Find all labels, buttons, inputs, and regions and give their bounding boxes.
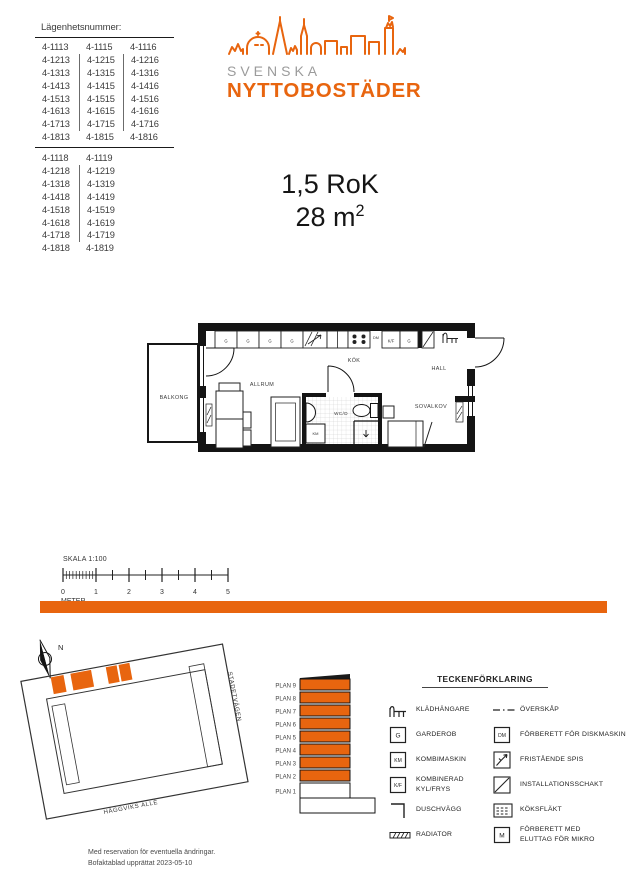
room-label-balkong: BALKONG [160, 395, 189, 401]
legend-item: KMKOMBIMASKIN [388, 747, 492, 772]
apartment-numbers-group-2: 4-11184-11194-12184-12194-13184-13194-14… [35, 152, 174, 255]
apartment-number: 4-1218 [35, 165, 79, 178]
box-m-symbol-icon: M [492, 825, 512, 845]
apartment-number: 4-1513 [35, 93, 79, 106]
brand-name-bottom: NYTTOBOSTÄDER [227, 79, 432, 103]
svg-text:DM: DM [498, 733, 506, 739]
apartment-number: 4-1118 [35, 152, 79, 165]
overhead-cabinet-icon [492, 701, 518, 719]
floor-band [300, 757, 350, 768]
legend-item-label: RADIATOR [416, 830, 452, 839]
room-label-hall: HALL [431, 366, 446, 372]
apartment-numbers-table: Lägenhetsnummer: 4-11134-11154-11164-121… [35, 22, 174, 255]
apartment-number: 4-1718 [35, 229, 79, 242]
rok-label: 1,5 RoK [230, 168, 430, 201]
entry-door [475, 338, 504, 367]
brand-name-top: SVENSKA [227, 63, 432, 79]
apartment-number-row: 4-14134-14154-1416 [35, 80, 174, 93]
north-label: N [58, 643, 63, 652]
legend-item: RADIATOR [388, 822, 492, 847]
coat-hanger-icon [443, 333, 458, 343]
floor-label: PLAN 4 [275, 749, 296, 755]
legend-item-label: KOMBIMASKIN [416, 755, 466, 764]
apartment-number: 4-1813 [35, 131, 79, 144]
legend-item-label: DUSCHVÄGG [416, 805, 462, 814]
apartment-number-row: 4-12134-12154-1216 [35, 54, 174, 67]
apartment-number-row: 4-17134-17154-1716 [35, 118, 174, 131]
floor-band [300, 770, 350, 781]
legend-item-label: FRISTÅENDE SPIS [520, 755, 583, 764]
apartment-number: 4-1518 [35, 204, 79, 217]
floor-label: PLAN 6 [275, 723, 296, 729]
legend-item-label: GARDEROB [416, 730, 457, 739]
ruler-number: 4 [193, 589, 197, 596]
km-label: KM [313, 431, 319, 436]
floor-band [300, 783, 350, 798]
installation-shaft-icon [492, 775, 512, 795]
coat-hanger-icon [388, 701, 410, 719]
duschvagg-symbol [388, 801, 416, 819]
bathroom [306, 397, 378, 444]
floor-label: PLAN 8 [275, 697, 296, 703]
apartment-number: 4-1316 [123, 67, 167, 80]
legend-item-label: ÖVERSKÅP [520, 705, 559, 714]
apartment-size-title: 1,5 RoK 28 m2 [230, 168, 430, 234]
ruler-number: 5 [226, 589, 230, 596]
garderob-label: G [224, 339, 227, 344]
balcony-door [206, 348, 234, 376]
scale-ruler [58, 566, 238, 584]
apartment-number: 4-1115 [79, 41, 123, 54]
bathroom-door [328, 366, 354, 392]
bofaktablad-page: Lägenhetsnummer: 4-11134-11154-11164-121… [0, 0, 626, 880]
apartment-number: 4-1216 [123, 54, 167, 67]
garderob-label: G [246, 339, 249, 344]
apartment-number: 4-1413 [35, 80, 79, 93]
floor-plan: BALKONG ALLRUM KÖK HALL SOVALKOV WC/D G … [140, 308, 540, 473]
garderob-label: G [290, 339, 293, 344]
koksflakt-symbol [492, 801, 520, 819]
overskap-symbol [492, 701, 520, 719]
floor-band [300, 731, 350, 742]
spis-symbol [492, 750, 520, 770]
apartment-number: 4-1219 [79, 165, 123, 178]
apartment-number-row: 4-12184-1219 [35, 165, 174, 178]
svg-text:KM: KM [394, 758, 402, 764]
footer-line-1: Med reservation för eventuella ändringar… [88, 848, 215, 859]
apartment-number-row: 4-14184-1419 [35, 191, 174, 204]
legend-item: DMFÖRBERETT FÖR DISKMASKIN [492, 722, 626, 747]
sink-symbol [348, 331, 370, 348]
building-outline [21, 644, 248, 819]
ruler-number: 2 [127, 589, 131, 596]
apartment-number-row: 4-17184-1719 [35, 229, 174, 242]
stove-icon [492, 750, 512, 770]
svg-text:M: M [499, 832, 504, 839]
apartment-number: 4-1419 [79, 191, 123, 204]
scale-numbers: 012345 [58, 589, 258, 599]
apartment-number: 4-1515 [79, 93, 123, 106]
apartment-number: 4-1213 [35, 54, 79, 67]
floor-band [300, 679, 350, 690]
box-kf-symbol: K/F [388, 775, 416, 795]
box-dm-symbol-icon: DM [492, 725, 512, 745]
room-label-sovalkov: SOVALKOV [415, 404, 447, 410]
garderob-label: G [268, 339, 271, 344]
legend-item-label: FÖRBERETT MED ELUTTAG FÖR MIKRO [520, 825, 595, 843]
toilet-icon [353, 405, 370, 417]
apartment-number: 4-1418 [35, 191, 79, 204]
apartment-number: 4-1315 [79, 67, 123, 80]
apartment-number: 4-1816 [123, 131, 167, 144]
box-g-symbol-icon: G [388, 725, 408, 745]
apartment-number: 4-1815 [79, 131, 123, 144]
box-dm-symbol: DM [492, 725, 520, 745]
floor-band [300, 744, 350, 755]
company-logo: SVENSKA NYTTOBOSTÄDER [227, 8, 432, 103]
shower-wall-icon [388, 801, 408, 819]
apartment-number: 4-1618 [35, 217, 79, 230]
radiator-icon [388, 826, 412, 844]
footer-line-2: Bofaktablad upprättat 2023-05-10 [88, 859, 215, 870]
apartment-number: 4-1719 [79, 229, 123, 242]
floor-band [300, 705, 350, 716]
legend-item-label: INSTALLATIONSSCHAKT [520, 780, 603, 789]
legend-title: TECKENFÖRKLARING [422, 674, 548, 688]
floor-label: PLAN 5 [275, 736, 296, 742]
legend-item: KLÄDHÄNGARE [388, 697, 492, 722]
legend-item: FRISTÅENDE SPIS [492, 747, 626, 772]
apartment-number: 4-1215 [79, 54, 123, 67]
legend-item: K/FKOMBINERAD KYL/FRYS [388, 772, 492, 797]
apartment-number: 4-1818 [35, 242, 79, 255]
floor-label: PLAN 3 [275, 762, 296, 768]
area-label: 28 m2 [230, 201, 430, 234]
svg-text:G: G [395, 732, 400, 739]
apartment-number-row: 4-15134-15154-1516 [35, 93, 174, 106]
legend-item: INSTALLATIONSSCHAKT [492, 772, 626, 797]
box-kf-symbol-icon: K/F [388, 775, 408, 795]
box-m-symbol: M [492, 825, 520, 845]
apartment-number: 4-1516 [123, 93, 167, 106]
apartment-number-row: 4-18184-1819 [35, 242, 174, 255]
legend-item-label: KÖKSFLÄKT [520, 805, 562, 814]
kladhangare-symbol [388, 701, 416, 719]
apartment-numbers-group-1: 4-11134-11154-11164-12134-12154-12164-13… [35, 41, 174, 144]
legend-column-left: KLÄDHÄNGARE GGARDEROB KMKOMBIMASKIN K/FK… [388, 697, 492, 847]
apartment-number: 4-1716 [123, 118, 167, 131]
legend-item-label: KLÄDHÄNGARE [416, 705, 470, 714]
apartment-number: 4-1713 [35, 118, 79, 131]
apartment-number: 4-1819 [79, 242, 123, 255]
box-g-symbol: G [388, 725, 416, 745]
apartment-numbers-title: Lägenhetsnummer: [35, 22, 174, 38]
apartment-number: 4-1318 [35, 178, 79, 191]
apartment-number: 4-1619 [79, 217, 123, 230]
footer-disclaimer: Med reservation för eventuella ändringar… [88, 848, 215, 869]
toilet-tank [371, 404, 379, 418]
floor-label: PLAN 1 [275, 790, 296, 796]
apartment-number-row: 4-11134-11154-1116 [35, 41, 174, 54]
ruler-number: 1 [94, 589, 98, 596]
svg-text:K/F: K/F [394, 783, 402, 789]
room-label-wcd: WC/D [334, 411, 348, 416]
apartment-number: 4-1519 [79, 204, 123, 217]
apartment-number: 4-1113 [35, 41, 79, 54]
legend-item: DUSCHVÄGG [388, 797, 492, 822]
skyline-icon [227, 8, 427, 56]
ground-floor-podium [300, 798, 375, 813]
box-km-symbol-icon: KM [388, 750, 408, 770]
legend-item: GGARDEROB [388, 722, 492, 747]
kitchen-fan-icon [492, 801, 514, 819]
apartment-number-row: 4-11184-1119 [35, 152, 174, 165]
floor-band [300, 692, 350, 703]
apartment-number-row: 4-13184-1319 [35, 178, 174, 191]
floor-label: PLAN 2 [275, 775, 296, 781]
apartment-number-row: 4-13134-13154-1316 [35, 67, 174, 80]
legend: TECKENFÖRKLARING KLÄDHÄNGARE GGARDEROB K… [386, 674, 626, 869]
box-km-symbol: KM [388, 750, 416, 770]
apartment-number: 4-1119 [79, 152, 123, 165]
apartment-number: 4-1616 [123, 105, 167, 118]
apartment-number-row: 4-16134-16154-1616 [35, 105, 174, 118]
apartment-number: 4-1615 [79, 105, 123, 118]
kf-label: K/F [388, 339, 395, 344]
apartment-number: 4-1415 [79, 80, 123, 93]
floor-band [300, 718, 350, 729]
building-section: PLAN 9PLAN 8PLAN 7PLAN 6PLAN 5PLAN 4PLAN… [262, 670, 380, 820]
apartment-number: 4-1116 [123, 41, 167, 54]
table-divider [35, 147, 174, 148]
floor-label: PLAN 7 [275, 710, 296, 716]
apartment-number: 4-1313 [35, 67, 79, 80]
ruler-number: 3 [160, 589, 164, 596]
apartment-number-row: 4-15184-1519 [35, 204, 174, 217]
dm-label: DM [373, 336, 379, 340]
apartment-number: 4-1319 [79, 178, 123, 191]
garderob-label: G [407, 339, 410, 344]
floor-label: PLAN 9 [275, 684, 296, 690]
site-plan: N STADETVÄGEN HÄGGVIKS ALLÉ [12, 632, 262, 842]
ruler-number: 0 [61, 589, 65, 596]
north-arrow-icon [34, 638, 57, 680]
legend-column-right: ÖVERSKÅP DMFÖRBERETT FÖR DISKMASKINFRIST… [492, 697, 626, 847]
apartment-number: 4-1715 [79, 118, 123, 131]
legend-item-label: KOMBINERAD KYL/FRYS [416, 775, 464, 793]
legend-item: KÖKSFLÄKT [492, 797, 626, 822]
room-label-allrum: ALLRUM [250, 382, 274, 388]
apartment-number-row: 4-16184-1619 [35, 217, 174, 230]
apartment-number: 4-1613 [35, 105, 79, 118]
legend-item: MFÖRBERETT MED ELUTTAG FÖR MIKRO [492, 822, 626, 847]
room-label-kok: KÖK [348, 357, 361, 364]
balcony [148, 344, 198, 442]
scale-label: SKALA 1:100 [63, 556, 107, 563]
schakt-symbol [492, 775, 520, 795]
legend-item: ÖVERSKÅP [492, 697, 626, 722]
bed [388, 421, 423, 447]
apartment-number: 4-1416 [123, 80, 167, 93]
radiator-symbol [388, 826, 416, 844]
orange-divider [40, 601, 607, 613]
apartment-number-row: 4-18134-18154-1816 [35, 131, 174, 144]
legend-item-label: FÖRBERETT FÖR DISKMASKIN [520, 730, 626, 739]
